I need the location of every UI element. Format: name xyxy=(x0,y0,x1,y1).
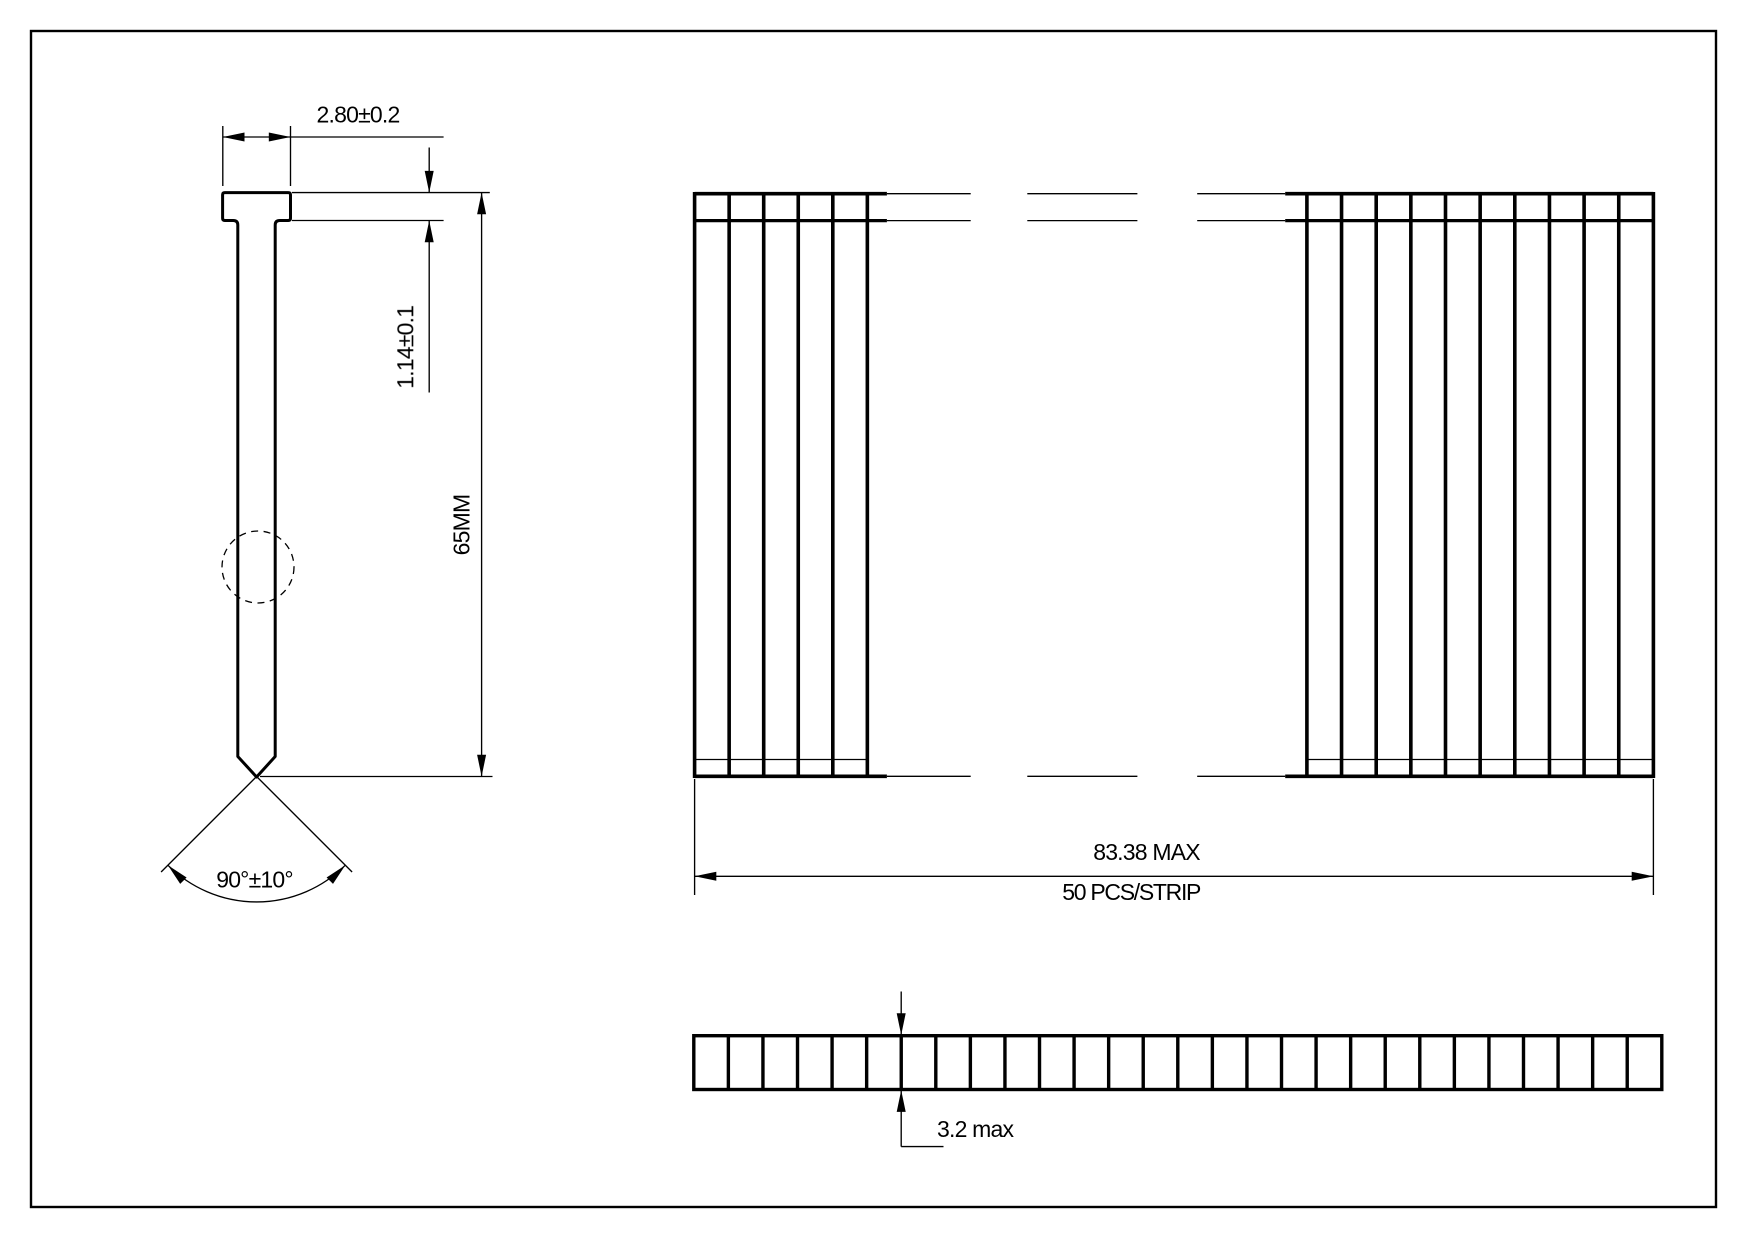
svg-text:90°±10°: 90°±10° xyxy=(216,866,293,892)
svg-text:50 PCS/STRIP: 50 PCS/STRIP xyxy=(1062,879,1201,905)
svg-text:3.2 max: 3.2 max xyxy=(937,1116,1015,1142)
svg-text:83.38 MAX: 83.38 MAX xyxy=(1093,839,1200,865)
svg-text:2.80±0.2: 2.80±0.2 xyxy=(317,102,400,128)
svg-text:65MM: 65MM xyxy=(448,495,474,556)
svg-text:1.14±0.1: 1.14±0.1 xyxy=(392,306,418,389)
